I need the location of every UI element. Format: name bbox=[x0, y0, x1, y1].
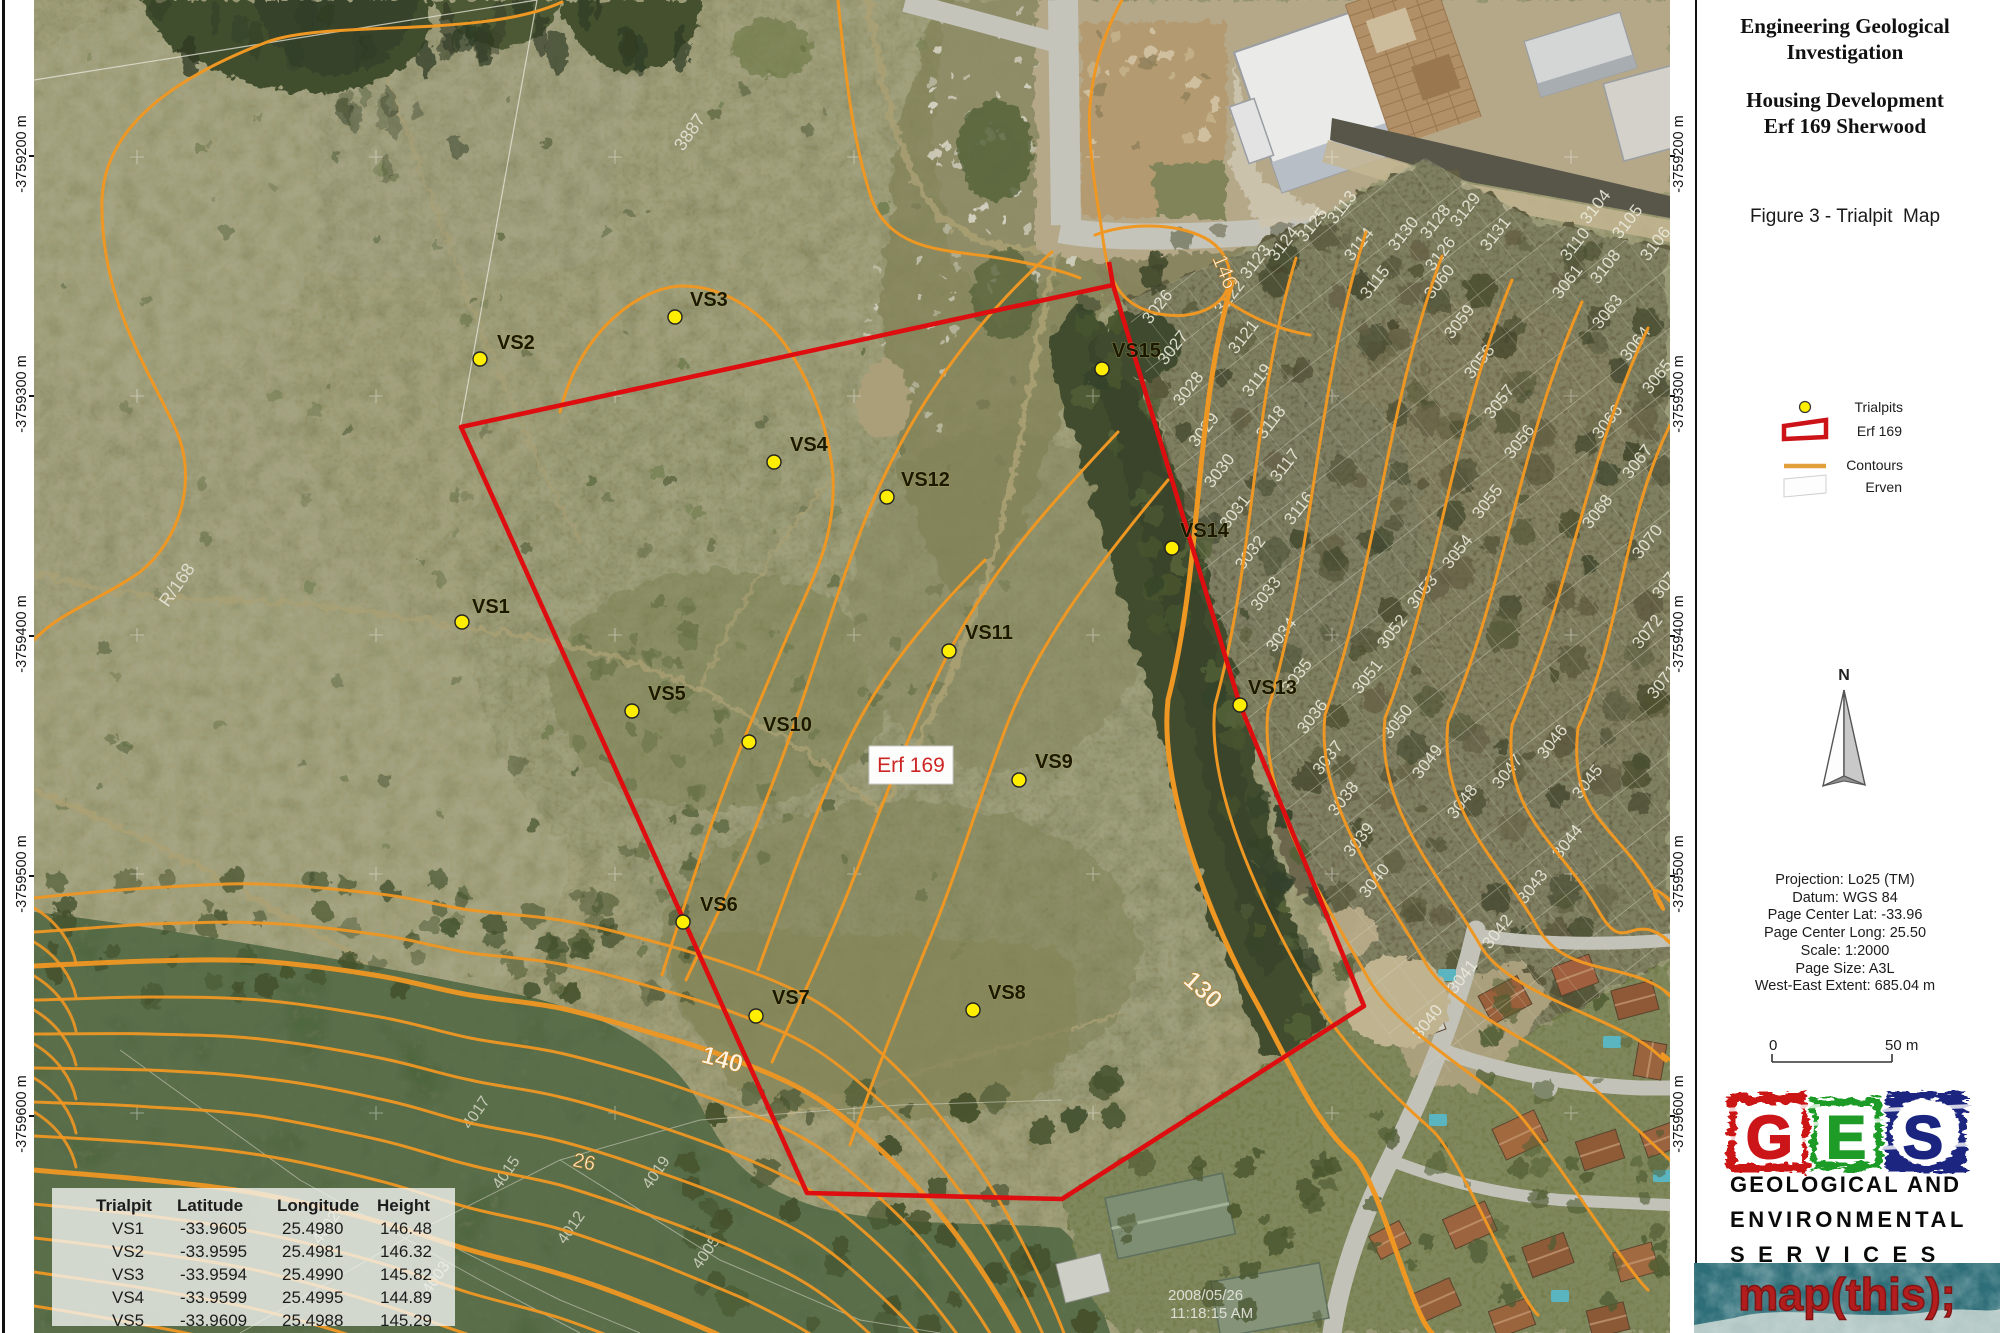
svg-text:VS1: VS1 bbox=[472, 596, 510, 618]
svg-text:-33.9595: -33.9595 bbox=[180, 1242, 247, 1261]
svg-text:26: 26 bbox=[571, 1149, 597, 1175]
svg-text:E: E bbox=[1826, 1104, 1866, 1171]
svg-text:VS15: VS15 bbox=[1112, 340, 1161, 362]
svg-text:VS3: VS3 bbox=[690, 289, 728, 311]
svg-text:SERVICES: SERVICES bbox=[1730, 1242, 1949, 1263]
svg-text:146.32: 146.32 bbox=[380, 1242, 432, 1261]
svg-text:map(this);: map(this); bbox=[1738, 1269, 1956, 1320]
svg-text:VS14: VS14 bbox=[1180, 520, 1230, 542]
svg-text:25.4990: 25.4990 bbox=[282, 1265, 343, 1284]
svg-text:VS4: VS4 bbox=[112, 1288, 144, 1307]
svg-text:G: G bbox=[1746, 1104, 1793, 1171]
svg-text:-33.9594: -33.9594 bbox=[180, 1265, 247, 1284]
svg-text:VS2: VS2 bbox=[497, 332, 535, 354]
svg-text:Longitude: Longitude bbox=[277, 1196, 359, 1215]
svg-text:VS5: VS5 bbox=[112, 1311, 144, 1330]
svg-text:VS2: VS2 bbox=[112, 1242, 144, 1261]
svg-text:Contours: Contours bbox=[1846, 457, 1903, 473]
svg-text:ENVIRONMENTAL: ENVIRONMENTAL bbox=[1730, 1207, 1967, 1232]
svg-text:N: N bbox=[1838, 667, 1850, 684]
svg-text:VS4: VS4 bbox=[790, 434, 829, 456]
svg-text:50 m: 50 m bbox=[1885, 1037, 1918, 1054]
svg-text:-33.9609: -33.9609 bbox=[180, 1311, 247, 1330]
svg-text:VS13: VS13 bbox=[1248, 677, 1297, 699]
svg-text:Trialpit: Trialpit bbox=[96, 1196, 152, 1215]
svg-text:-33.9605: -33.9605 bbox=[180, 1219, 247, 1238]
svg-text:Erven: Erven bbox=[1865, 479, 1902, 495]
svg-text:VS8: VS8 bbox=[988, 982, 1026, 1004]
svg-text:VS12: VS12 bbox=[901, 469, 950, 491]
svg-text:VS11: VS11 bbox=[965, 622, 1013, 644]
svg-text:Erf 169: Erf 169 bbox=[1857, 423, 1902, 439]
svg-text:145.29: 145.29 bbox=[380, 1311, 432, 1330]
svg-text:VS9: VS9 bbox=[1035, 751, 1073, 773]
svg-text:11:18:15 AM: 11:18:15 AM bbox=[1170, 1305, 1253, 1322]
svg-text:2008/05/26: 2008/05/26 bbox=[1168, 1287, 1243, 1304]
svg-text:25.4988: 25.4988 bbox=[282, 1311, 343, 1330]
svg-text:GEOLOGICAL AND: GEOLOGICAL AND bbox=[1730, 1172, 1961, 1197]
svg-text:VS5: VS5 bbox=[648, 683, 686, 705]
svg-text:145.82: 145.82 bbox=[380, 1265, 432, 1284]
svg-text:0: 0 bbox=[1769, 1037, 1777, 1054]
svg-text:Height: Height bbox=[377, 1196, 430, 1215]
svg-text:S: S bbox=[1903, 1104, 1943, 1171]
svg-text:146.48: 146.48 bbox=[380, 1219, 432, 1238]
svg-text:-33.9599: -33.9599 bbox=[180, 1288, 247, 1307]
svg-text:25.4981: 25.4981 bbox=[282, 1242, 343, 1261]
svg-text:Erf 169: Erf 169 bbox=[877, 754, 945, 777]
svg-text:VS6: VS6 bbox=[700, 894, 738, 916]
svg-text:144.89: 144.89 bbox=[380, 1288, 432, 1307]
svg-text:VS3: VS3 bbox=[112, 1265, 144, 1284]
svg-text:VS7: VS7 bbox=[772, 987, 810, 1009]
svg-text:Latitude: Latitude bbox=[177, 1196, 243, 1215]
svg-text:25.4995: 25.4995 bbox=[282, 1288, 343, 1307]
svg-text:VS1: VS1 bbox=[112, 1219, 144, 1238]
svg-text:Trialpits: Trialpits bbox=[1855, 399, 1904, 415]
svg-text:25.4980: 25.4980 bbox=[282, 1219, 343, 1238]
svg-text:VS10: VS10 bbox=[763, 714, 812, 736]
